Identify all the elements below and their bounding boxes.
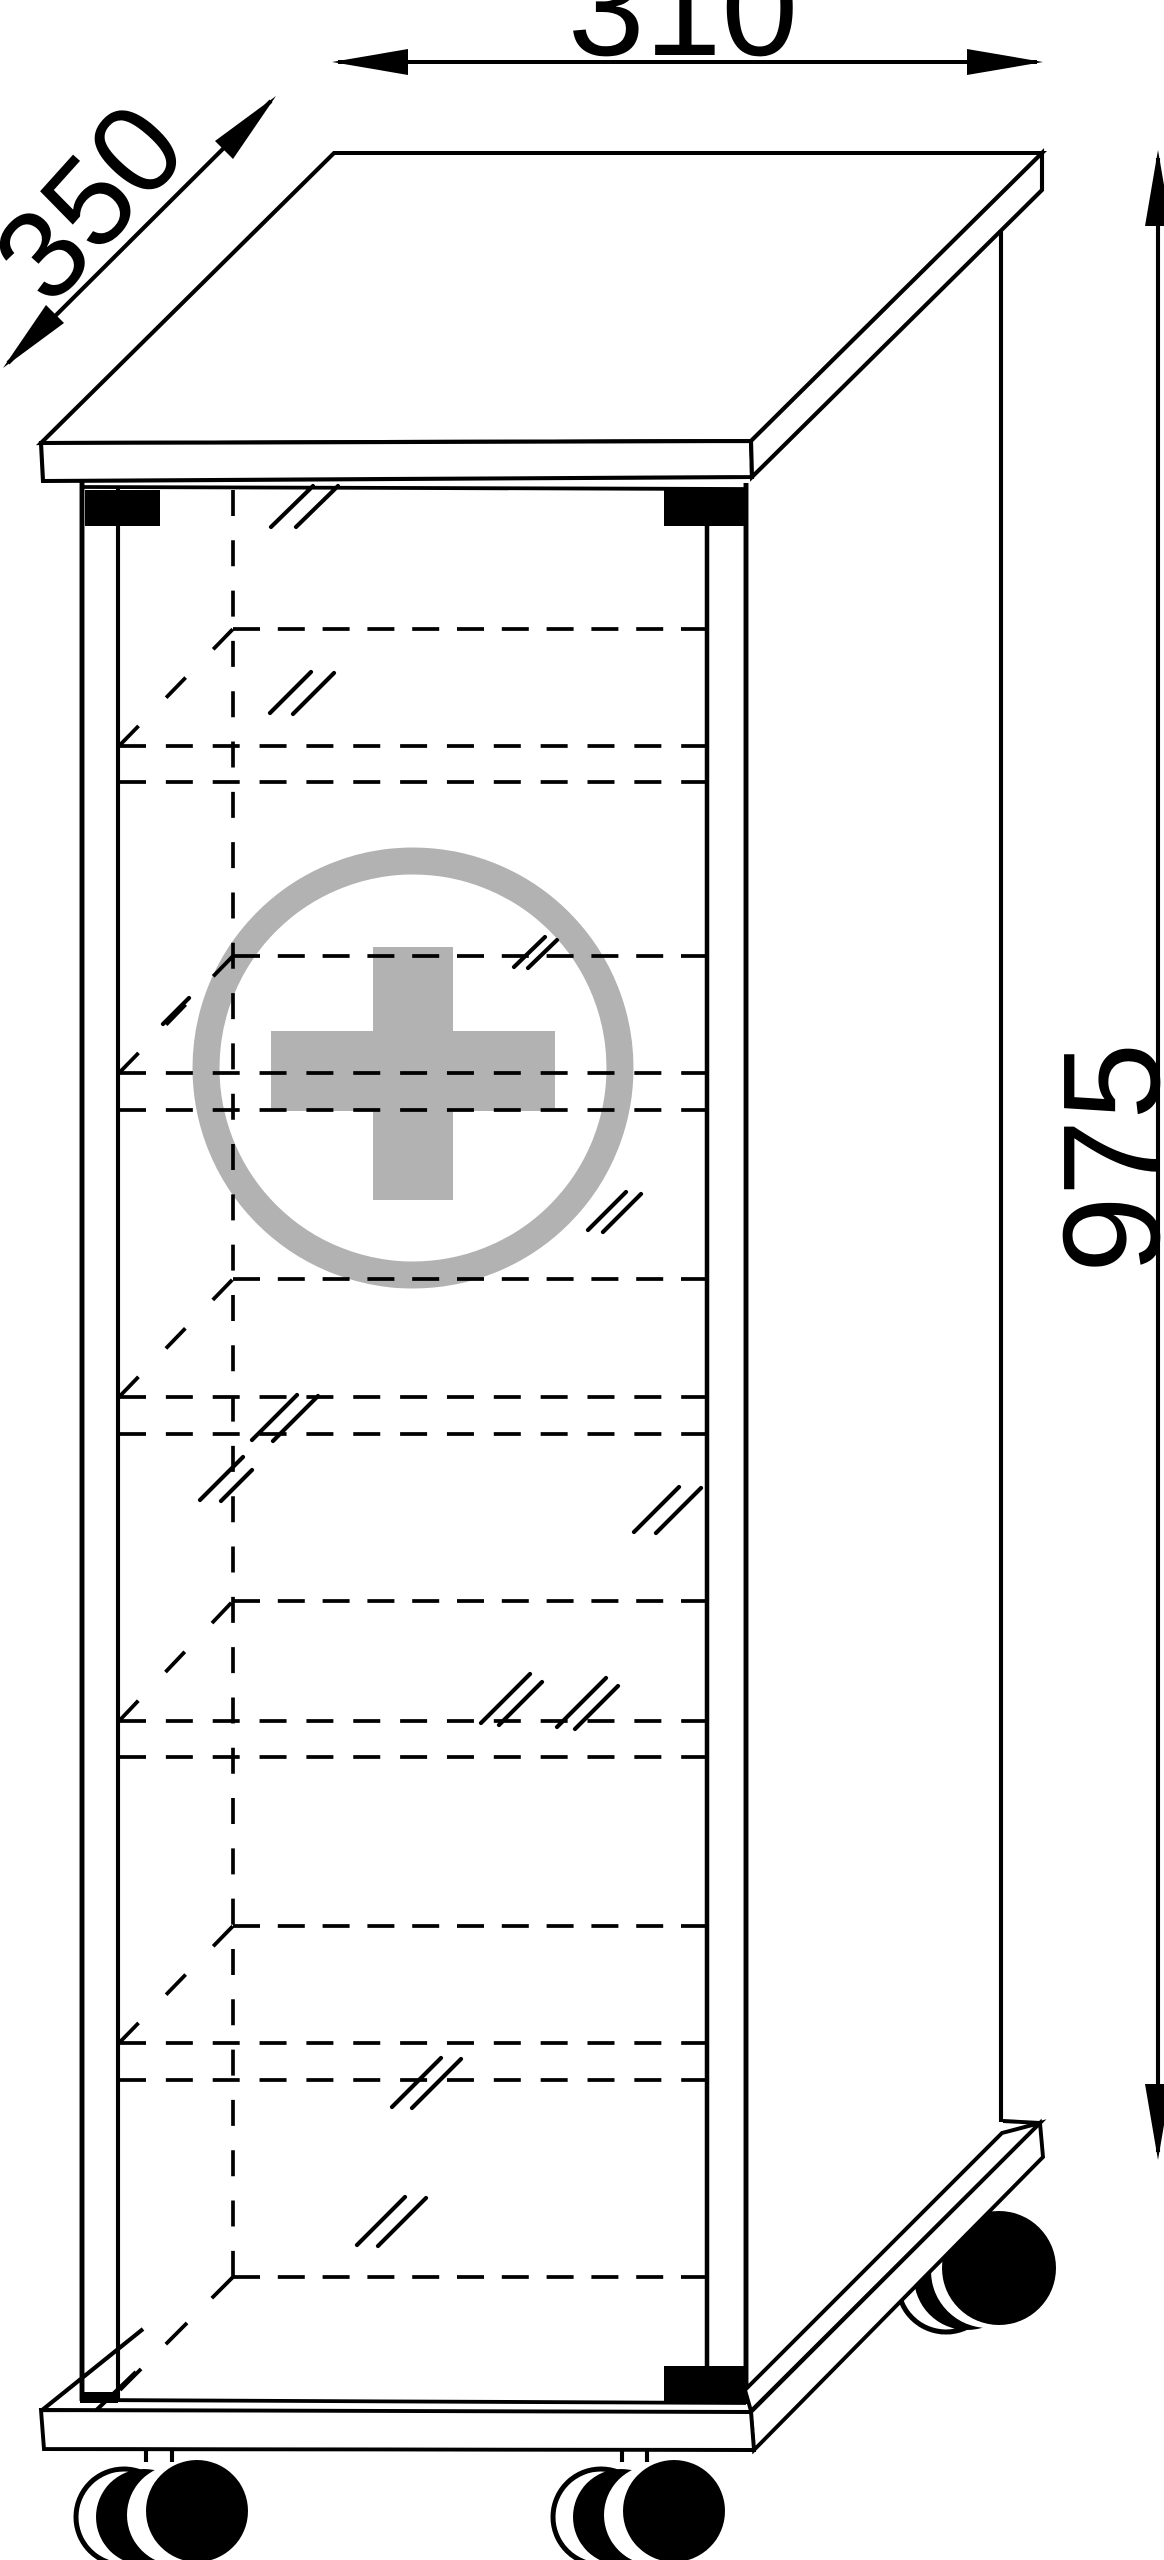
svg-text:310: 310 <box>568 0 798 85</box>
svg-text:975: 975 <box>1035 1043 1164 1273</box>
